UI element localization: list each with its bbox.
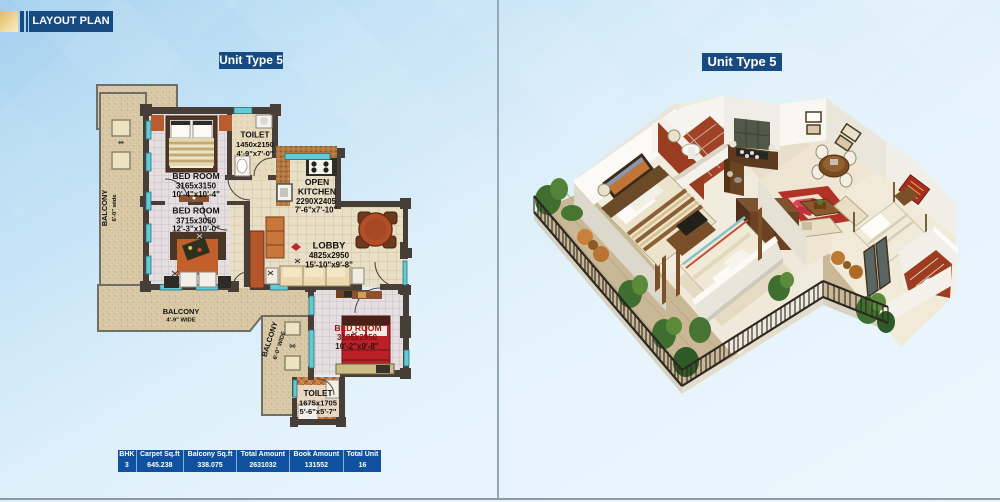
svg-text:10'-4"x10'-4": 10'-4"x10'-4"	[172, 190, 220, 199]
svg-text:15'-10"x9'-8": 15'-10"x9'-8"	[305, 261, 353, 270]
svg-text:OPEN: OPEN	[305, 177, 329, 187]
svg-text:BED ROOM: BED ROOM	[172, 171, 219, 181]
svg-text:BED ROOM: BED ROOM	[334, 323, 381, 333]
svg-text:6'-0" wide: 6'-0" wide	[112, 194, 118, 222]
svg-text:TOILET: TOILET	[241, 131, 270, 140]
svg-text:LOBBY: LOBBY	[313, 240, 347, 251]
svg-text:KITCHEN: KITCHEN	[298, 187, 336, 197]
svg-text:BALCONY: BALCONY	[100, 190, 109, 227]
svg-text:TOILET: TOILET	[304, 389, 333, 398]
svg-text:4'-9" WIDE: 4'-9" WIDE	[166, 318, 195, 324]
svg-text:BED ROOM: BED ROOM	[172, 206, 219, 216]
svg-text:4825x2950: 4825x2950	[309, 251, 350, 260]
svg-text:12'-3"x10'-0": 12'-3"x10'-0"	[172, 225, 220, 234]
svg-text:3105x2950: 3105x2950	[337, 333, 378, 342]
svg-text:BALCONY: BALCONY	[163, 307, 200, 316]
svg-text:7'-6"x7'-10": 7'-6"x7'-10"	[295, 206, 338, 215]
svg-text:1450x2150: 1450x2150	[236, 140, 274, 149]
svg-text:4'-9"x7'-0": 4'-9"x7'-0"	[237, 149, 274, 158]
svg-text:10'-2"x9'-8": 10'-2"x9'-8"	[335, 342, 379, 351]
svg-text:5'-6"x5'-7": 5'-6"x5'-7"	[300, 407, 337, 416]
